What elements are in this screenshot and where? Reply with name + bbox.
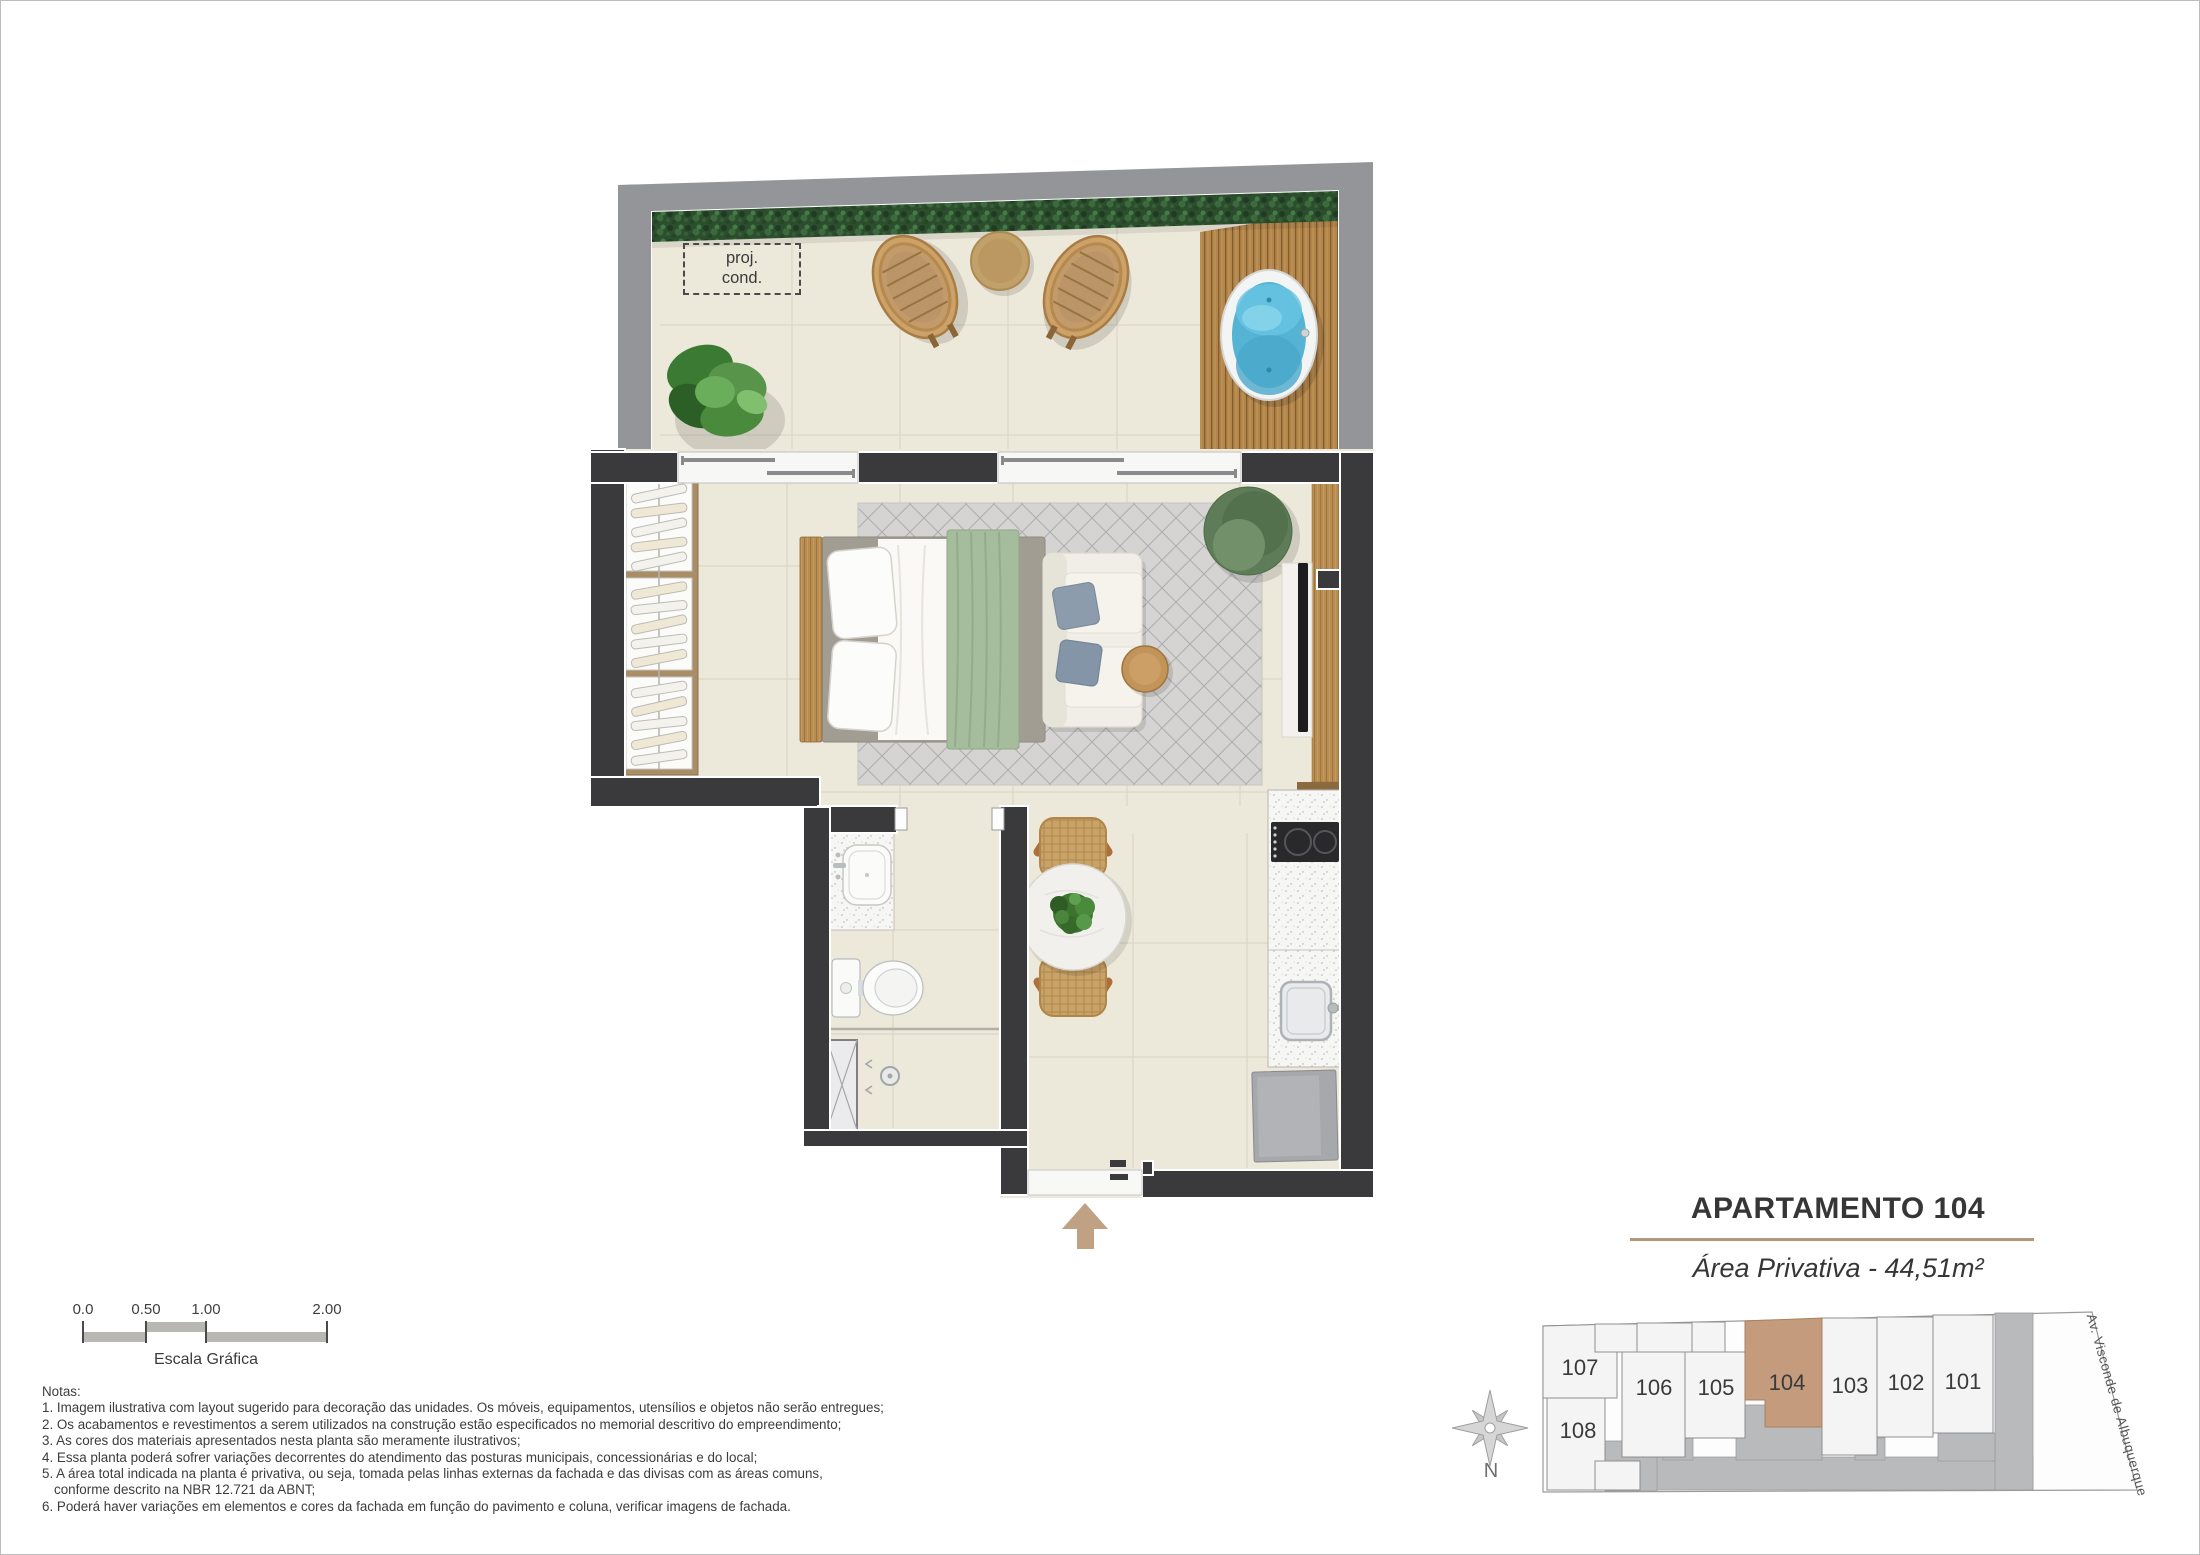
- compass-north-label: N: [1476, 1460, 1506, 1483]
- sofa-cushion-2: [1055, 639, 1102, 686]
- cooktop-icon: [1271, 822, 1339, 862]
- sliding-window-right: [998, 452, 1241, 483]
- wall-below-closet: [590, 777, 820, 807]
- title-divider: [1630, 1238, 2034, 1241]
- tv-icon: [1298, 563, 1308, 732]
- page-title: APARTAMENTO 104: [1640, 1192, 2036, 1226]
- toilet-icon: [832, 959, 923, 1017]
- wall-bathroom-bottom: [803, 1130, 1028, 1147]
- keyplan-label-103: 103: [1818, 1373, 1882, 1399]
- note-line: conforme descrito na NBR 12.721 da ABNT;: [42, 1482, 1102, 1498]
- note-line: 5. A área total indicada na planta é pri…: [42, 1466, 1102, 1482]
- keyplan-label-104: 104: [1755, 1370, 1819, 1396]
- bed-pillow-bottom: [827, 640, 897, 732]
- notes-block: Notas: 1. Imagem ilustrativa com layout …: [42, 1384, 1102, 1515]
- private-area-subtitle: Área Privativa - 44,51m²: [1640, 1253, 2036, 1284]
- sofa-icon: [1043, 553, 1146, 732]
- proj-cond-line1: proj.: [726, 249, 758, 269]
- wall-top-seg-2: [858, 452, 998, 483]
- proj-cond-label: proj. cond.: [683, 243, 801, 295]
- proj-cond-line2: cond.: [722, 269, 762, 289]
- sofa-cushion-1: [1052, 582, 1101, 631]
- keyplan-label-102: 102: [1874, 1370, 1938, 1396]
- wall-left: [590, 449, 625, 807]
- scale-tick-050: 0.50: [121, 1301, 171, 1318]
- keyplan-label-101: 101: [1931, 1369, 1995, 1395]
- wall-top-seg-1: [590, 452, 678, 483]
- terrace: [617, 161, 1374, 460]
- wall-bathroom-left: [803, 807, 830, 1147]
- note-line: 3. As cores dos materiais apresentados n…: [42, 1433, 1102, 1449]
- wall-bottom: [1142, 1170, 1374, 1198]
- bed-pillow-top: [826, 546, 897, 639]
- entry-arrow-icon: [1062, 1203, 1108, 1249]
- bed-headboard: [800, 537, 822, 742]
- notes-heading: Notas:: [42, 1384, 1102, 1400]
- keyplan-label-105: 105: [1684, 1375, 1748, 1401]
- tv-wood-panel: [1312, 480, 1340, 782]
- sliding-window-left: [678, 452, 858, 483]
- scale-caption: Escala Gráfica: [125, 1351, 287, 1369]
- scale-tick-200: 2.00: [302, 1301, 352, 1318]
- note-line: 6. Poderá haver variações em elementos e…: [42, 1499, 1102, 1515]
- scale-tick-100: 1.00: [181, 1301, 231, 1318]
- keyplan-unit-106: [1622, 1352, 1685, 1457]
- floor-plan-svg: [0, 0, 2200, 1555]
- wall-right: [1340, 452, 1374, 1198]
- note-line: 1. Imagem ilustrativa com layout sugerid…: [42, 1400, 1102, 1416]
- scale-bar: [83, 1321, 327, 1343]
- keyplan: [1452, 1312, 2137, 1492]
- note-line: 4. Essa planta poderá sofrer variações d…: [42, 1450, 1102, 1466]
- page: proj. cond. APARTAMENTO 104 Área Privati…: [0, 0, 2200, 1555]
- note-line: 2. Os acabamentos e revestimentos a sere…: [42, 1417, 1102, 1433]
- compass-icon: [1452, 1390, 1528, 1466]
- keyplan-label-106: 106: [1622, 1375, 1686, 1401]
- keyplan-label-107: 107: [1548, 1355, 1612, 1381]
- bed-icon: [800, 530, 1045, 749]
- closet-icon: [620, 475, 698, 775]
- scale-tick-0: 0.0: [58, 1301, 108, 1318]
- wall-bottom-stub: [1142, 1161, 1153, 1175]
- keyplan-label-108: 108: [1546, 1418, 1610, 1444]
